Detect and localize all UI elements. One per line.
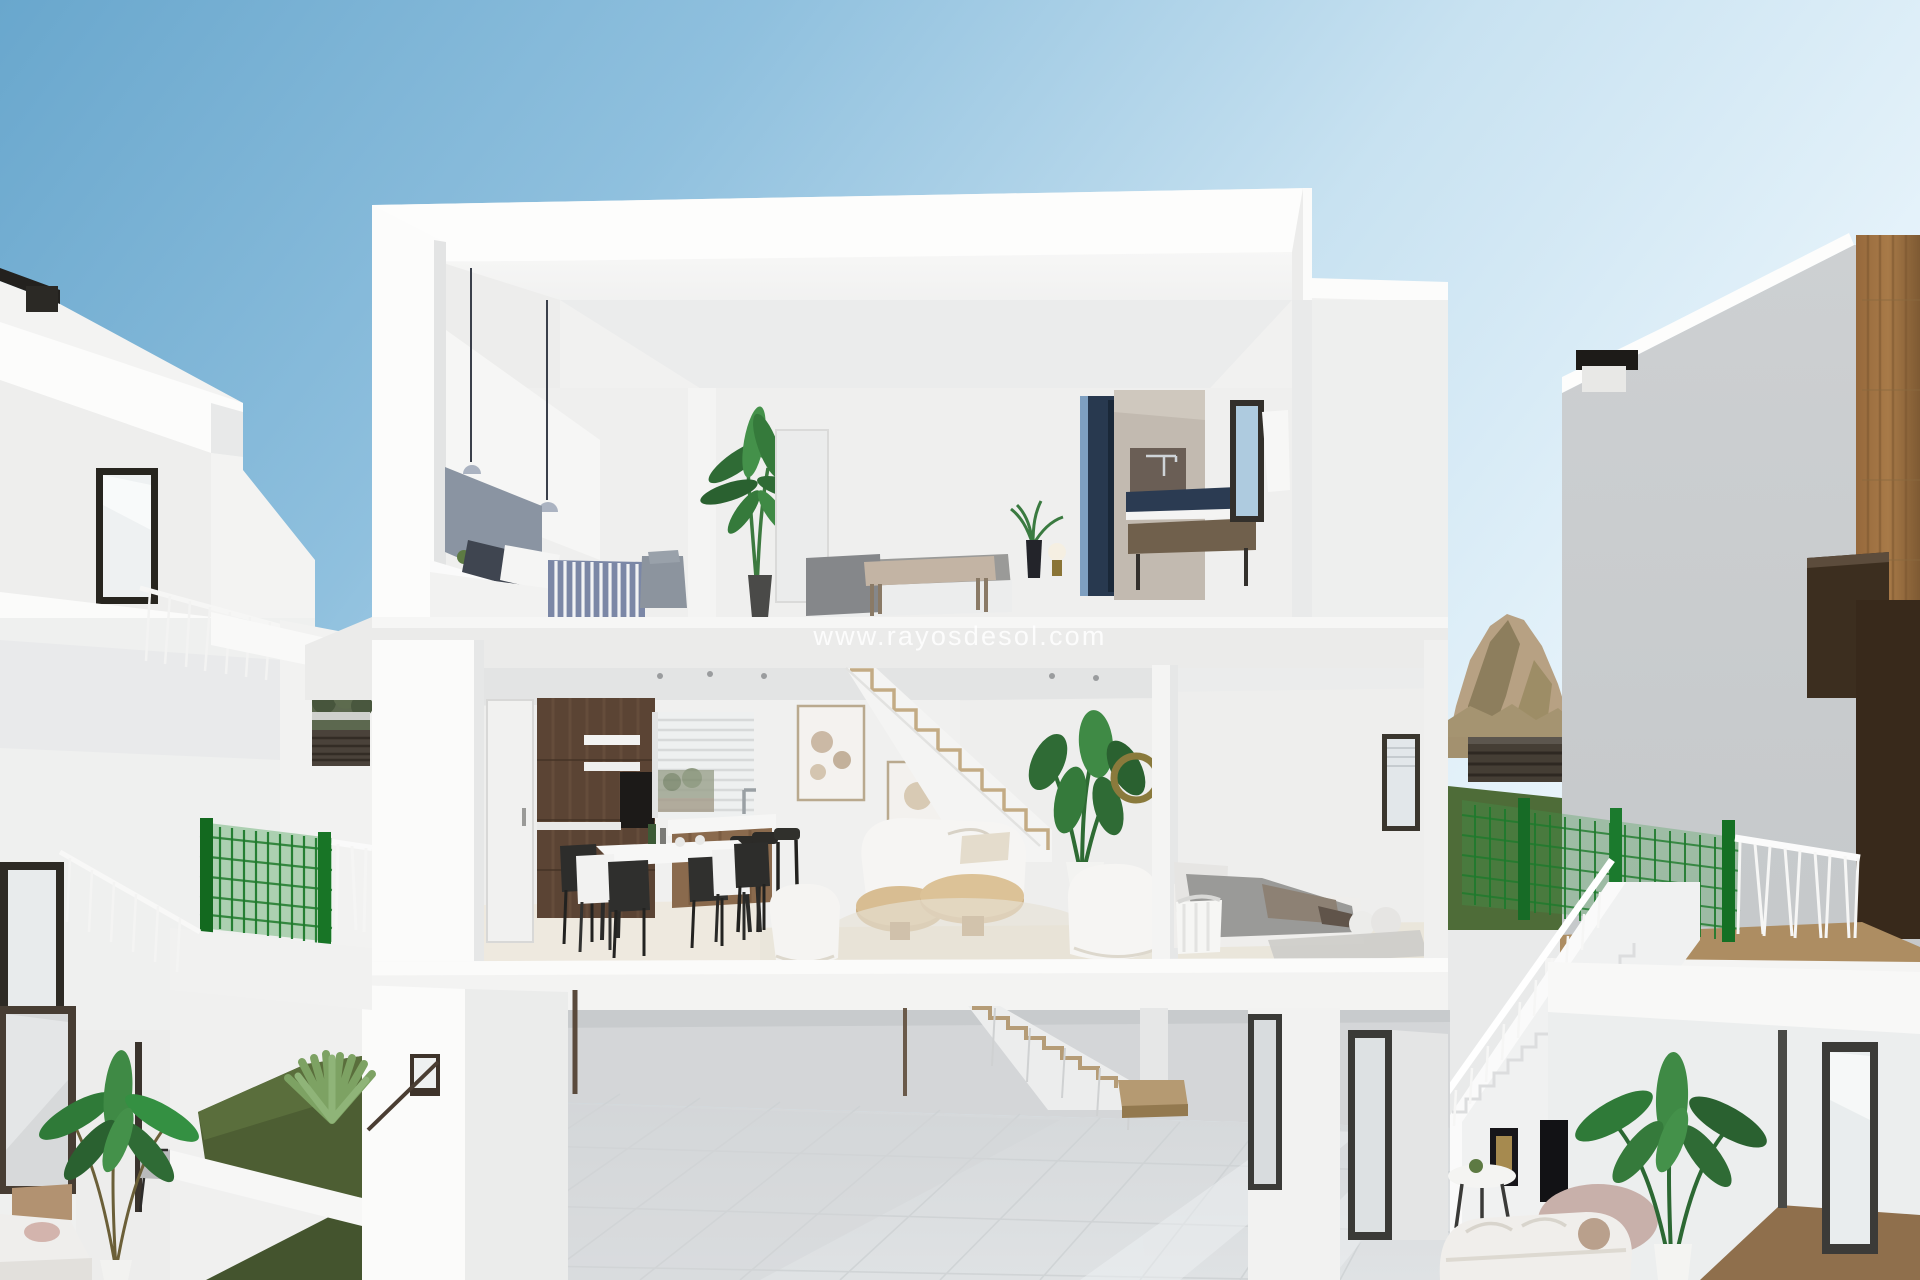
svg-text:www.rayosdesol.com: www.rayosdesol.com (812, 621, 1106, 651)
